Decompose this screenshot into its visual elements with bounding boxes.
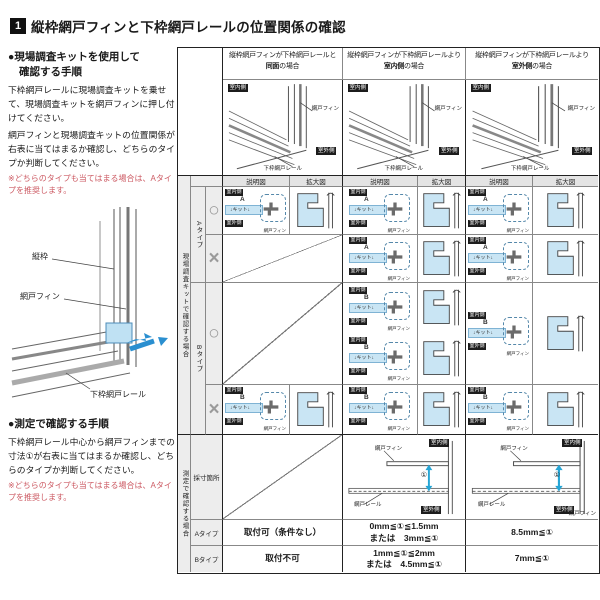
outdoor-badge: 室外側 xyxy=(349,220,367,227)
result-b-c1: 取付不可 xyxy=(223,546,343,572)
outdoor-badge: 室外側 xyxy=(468,418,486,425)
col-header-line1: 縦枠網戸フィンが下枠網戸レールと xyxy=(223,51,342,62)
fin-label: 網戸フィン xyxy=(312,104,339,112)
fin-label: 網戸フィン xyxy=(388,276,410,282)
measurement-diagram: 室内側 網戸フィン ① 網戸レール 室外側 網戸フィン xyxy=(466,435,598,519)
kit-diagram-host: 室内側 B ↓キット↓ 室外側 網戸フィン xyxy=(343,335,417,382)
section-number-box: 1 xyxy=(10,18,26,34)
fin-highlight-box xyxy=(503,194,529,222)
down-arrow-icon: ↓ xyxy=(491,255,494,261)
cell-b-ng-c2-zoom xyxy=(418,385,466,435)
profile-section-shape xyxy=(294,389,338,431)
kit-type-letter: A xyxy=(364,196,369,203)
kit-position-diagram: 室内側 A ↓キット↓ 室外側 網戸フィン xyxy=(467,188,531,234)
kit-procedure-paragraph-2: 網戸フィンと現場調査キットの位置関係が右表に当てはまるか確認し、どちらのタイプか… xyxy=(8,129,176,170)
enlarged-diagram xyxy=(290,187,342,234)
fin-highlight-box xyxy=(384,194,410,222)
indoor-badge: 室内側 xyxy=(349,287,367,294)
kit-word-label: ↓キット↓ xyxy=(473,404,493,411)
cell-b-ok-c2-zoom xyxy=(418,283,466,385)
outdoor-badge: 室外側 xyxy=(225,220,243,227)
cell-a-ok-c2-zoom xyxy=(418,187,466,235)
profile-section-shape xyxy=(420,238,464,280)
corner-line-art xyxy=(466,80,598,175)
kit-diagram-host: 室内側 B ↓キット↓ 室外側 網戸フィン xyxy=(467,310,531,357)
outdoor-badge: 室外側 xyxy=(349,368,367,375)
kit-word: キット xyxy=(233,405,248,411)
kit-position-diagram: 室内側 A ↓キット↓ 室外側 網戸フィン xyxy=(224,188,288,234)
fin-highlight-box xyxy=(503,317,529,345)
fin-highlight-box xyxy=(384,242,410,270)
indoor-badge: 室内側 xyxy=(468,387,486,394)
zoom-diagram-host xyxy=(418,287,465,329)
col-header-line2: 室内側の場合 xyxy=(343,62,465,73)
fin-highlight-box xyxy=(384,292,410,320)
outdoor-badge: 室外側 xyxy=(468,343,486,350)
left-pad-cell xyxy=(191,176,223,187)
profile-section-shape xyxy=(544,190,588,232)
fin-label: 網戸フィン xyxy=(568,104,595,112)
enlarged-diagram xyxy=(533,187,598,234)
kit-word-label: ↓キット↓ xyxy=(354,206,374,213)
cell-b-ok-c2-explain: 室内側 B ↓キット↓ 室外側 網戸フィン 室内側 B ↓キット↓ 室外側 網戸… xyxy=(343,283,418,385)
col-header-flush: 縦枠網戸フィンが下枠網戸レールと 同面の場合 xyxy=(223,48,343,80)
enlarged-diagram xyxy=(533,283,598,384)
kit-word: キット xyxy=(357,405,372,411)
type-b-ng-mark: × xyxy=(206,385,223,435)
fin-label: 網戸フィン xyxy=(507,426,529,432)
fin-label: 網戸フィン xyxy=(388,376,410,382)
fin-highlight-box xyxy=(260,194,286,222)
outdoor-badge: 室外側 xyxy=(421,506,441,514)
cell-a-ng-c3-zoom xyxy=(533,235,598,283)
kit-word: キット xyxy=(476,255,491,261)
fin-label: 網戸フィン xyxy=(264,426,286,432)
indoor-badge: 室内側 xyxy=(349,337,367,344)
kit-word: キット xyxy=(357,355,372,361)
dimension-1-label: ① xyxy=(421,471,427,479)
cell-b-ng-c3-explain: 室内側 B ↓キット↓ 室外側 網戸フィン xyxy=(466,385,533,435)
frame-overview-line-art xyxy=(8,201,173,413)
col-header-suffix: の場合 xyxy=(279,63,299,70)
fin-label: 網戸フィン xyxy=(569,509,596,517)
down-arrow-icon: ↓ xyxy=(248,207,251,213)
vertical-frame-label: 縦枠 xyxy=(32,251,48,262)
profile-section-shape xyxy=(544,313,588,355)
frame-corner-diagram: 室内側 網戸フィン 室外側 下枠網戸レール xyxy=(343,80,465,175)
col-header-line2: 同面の場合 xyxy=(223,62,342,73)
kit-word: キット xyxy=(476,207,491,213)
sidebar: ●現場調査キットを使用して 確認する手順 下枠網戸レールに現場調査キットを乗せて… xyxy=(8,50,176,504)
kit-word-label: ↓キット↓ xyxy=(473,206,493,213)
measure-type-a-label: Aタイプ xyxy=(191,520,223,546)
kit-type-letter: A xyxy=(483,244,488,251)
kit-word: キット xyxy=(476,330,491,336)
fin-label: 網戸フィン xyxy=(500,444,527,452)
kit-word-label: ↓キット↓ xyxy=(354,404,374,411)
fin-label: 網戸フィン xyxy=(264,228,286,234)
measurement-diagram: 室内側 網戸フィン ① 網戸レール 室外側 網戸フィン xyxy=(343,435,465,519)
rail-label: 下枠網戸レール xyxy=(511,164,550,172)
measure-procedure-section: ●測定で確認する手順 下枠網戸レール中心から網戸フィンまでの寸法①が右表に当ては… xyxy=(8,417,176,504)
kit-position-diagram: 室内側 B ↓キット↓ 室外側 網戸フィン xyxy=(467,386,531,432)
indoor-badge: 室内側 xyxy=(468,312,486,319)
indoor-badge: 室内側 xyxy=(228,84,248,92)
rail-label: 網戸レール xyxy=(478,500,506,508)
col-header-indoor: 縦枠網戸フィンが下枠網戸レールより 室内側の場合 xyxy=(343,48,466,80)
col-header-bold: 室内側 xyxy=(384,63,404,70)
profile-section-shape xyxy=(420,287,464,329)
type-b-ok-mark: ○ xyxy=(206,283,223,385)
header-diagram-flush: 室内側 網戸フィン 室外側 下枠網戸レール xyxy=(223,80,343,176)
fin-label: 網戸フィン xyxy=(507,228,529,234)
fin-highlight-box xyxy=(260,392,286,420)
enlarged-diagram xyxy=(290,385,342,434)
kit-word-label: ↓キット↓ xyxy=(354,354,374,361)
kit-procedure-paragraph-1: 下枠網戸レールに現場調査キットを乗せて、現場調査キットを網戸フィンに押し付けてく… xyxy=(8,84,176,125)
indoor-badge: 室内側 xyxy=(349,237,367,244)
kit-type-letter: B xyxy=(364,344,369,351)
kit-type-letter: B xyxy=(364,394,369,401)
subheader-explain: 説明図 xyxy=(466,176,533,187)
frame-corner-diagram: 室内側 網戸フィン 室外側 下枠網戸レール xyxy=(223,80,342,175)
cell-b-ng-c1-explain: 室内側 B ↓キット↓ 室外側 網戸フィン xyxy=(223,385,290,435)
cell-b-ng-c3-zoom xyxy=(533,385,598,435)
kit-position-diagram: 室内側 B ↓キット↓ 室外側 網戸フィン xyxy=(224,386,288,432)
indoor-badge: 室内側 xyxy=(349,387,367,394)
fin-highlight-box xyxy=(503,392,529,420)
enlarged-diagram xyxy=(418,287,465,329)
kit-type-letter: B xyxy=(483,319,488,326)
fin-highlight-box xyxy=(384,392,410,420)
indoor-badge: 室内側 xyxy=(225,387,243,394)
table-top-left-empty-cell xyxy=(178,48,223,176)
down-arrow-icon: ↓ xyxy=(372,405,375,411)
profile-section-shape xyxy=(420,338,464,380)
kit-word-label: ↓キット↓ xyxy=(230,404,250,411)
fin-highlight-box xyxy=(384,342,410,370)
fin-label: 網戸フィン xyxy=(507,276,529,282)
kit-position-diagram: 室内側 B ↓キット↓ 室外側 網戸フィン xyxy=(467,311,531,357)
cell-a-ok-c1-explain: 室内側 A ↓キット↓ 室外側 網戸フィン xyxy=(223,187,290,235)
col-header-suffix: の場合 xyxy=(404,63,424,70)
profile-section-shape xyxy=(420,389,464,431)
cell-a-ok-c2-explain: 室内側 A ↓キット↓ 室外側 網戸フィン xyxy=(343,187,418,235)
stacked-diagrams xyxy=(418,283,465,384)
kit-position-diagram: 室内側 B ↓キット↓ 室外側 網戸フィン xyxy=(348,386,412,432)
type-a-ng-mark: × xyxy=(206,235,223,283)
kit-type-letter: B xyxy=(483,394,488,401)
col-header-line1: 縦枠網戸フィンが下枠網戸レールより xyxy=(343,51,465,62)
header-diagram-outdoor: 室内側 網戸フィン 室外側 下枠網戸レール xyxy=(466,80,598,176)
fin-label: 網戸フィン xyxy=(20,291,60,302)
cell-a-ok-c1-zoom xyxy=(290,187,343,235)
kit-type-letter: B xyxy=(364,294,369,301)
enlarged-diagram xyxy=(418,235,465,282)
enlarged-diagram xyxy=(418,385,465,434)
fin-label: 網戸フィン xyxy=(388,326,410,332)
subheader-explain: 説明図 xyxy=(343,176,418,187)
kit-word-label: ↓キット↓ xyxy=(354,304,374,311)
fin-label: 網戸フィン xyxy=(375,444,402,452)
outdoor-badge: 室外側 xyxy=(225,418,243,425)
down-arrow-icon: ↓ xyxy=(491,207,494,213)
kit-position-diagram: 室内側 B ↓キット↓ 室外側 網戸フィン xyxy=(348,336,412,382)
cell-a-ok-c3-explain: 室内側 A ↓キット↓ 室外側 網戸フィン xyxy=(466,187,533,235)
type-a-row-label: Aタイプ xyxy=(191,187,206,283)
kit-position-diagram: 室内側 B ↓キット↓ 室外側 網戸フィン xyxy=(348,286,412,332)
cell-b-ng-c1-zoom xyxy=(290,385,343,435)
down-arrow-icon: ↓ xyxy=(372,255,375,261)
enlarged-diagram xyxy=(533,235,598,282)
type-a-ok-mark: ○ xyxy=(206,187,223,235)
cell-b-ok-c1-not-applicable xyxy=(223,283,343,385)
rail-label: 網戸レール xyxy=(354,500,382,508)
frame-corner-diagram: 室内側 網戸フィン 室外側 下枠網戸レール xyxy=(466,80,598,175)
frame-overview-diagram: 縦枠 網戸フィン 下枠網戸レール xyxy=(8,201,173,413)
kit-procedure-heading-line2: 確認する手順 xyxy=(8,65,176,80)
rail-label: 下枠網戸レール xyxy=(384,164,423,172)
enlarged-diagram xyxy=(418,338,465,380)
outdoor-badge: 室外側 xyxy=(468,268,486,275)
col-header-bold: 同面 xyxy=(266,63,279,70)
indoor-badge: 室内側 xyxy=(468,189,486,196)
indoor-badge: 室内側 xyxy=(471,84,491,92)
kit-word-label: ↓キット↓ xyxy=(230,206,250,213)
cell-a-ng-c3-explain: 室内側 A ↓キット↓ 室外側 網戸フィン xyxy=(466,235,533,283)
outdoor-badge: 室外側 xyxy=(439,147,459,155)
enlarged-diagram xyxy=(418,187,465,234)
fin-label: 網戸フィン xyxy=(507,351,529,357)
kit-type-letter: A xyxy=(483,196,488,203)
down-arrow-icon: ↓ xyxy=(372,207,375,213)
enlarged-diagram xyxy=(533,385,598,434)
measure-diagram-outdoor: 室内側 網戸フィン ① 網戸レール 室外側 網戸フィン xyxy=(466,435,598,520)
result-b-c2: 1mm≦①≦2mmまたは 4.5mm≦① xyxy=(343,546,466,572)
kit-word-label: ↓キット↓ xyxy=(354,254,374,261)
fin-label: 網戸フィン xyxy=(435,104,462,112)
kit-type-letter: A xyxy=(364,244,369,251)
down-arrow-icon: ↓ xyxy=(248,405,251,411)
measure-row-label: 採寸箇所 xyxy=(191,435,223,520)
col-header-line2: 室外側の場合 xyxy=(466,62,598,73)
indoor-badge: 室内側 xyxy=(225,189,243,196)
kit-position-diagram: 室内側 A ↓キット↓ 室外側 網戸フィン xyxy=(467,236,531,282)
result-a-c2: 0mm≦①≦1.5mmまたは 3mm≦① xyxy=(343,520,466,546)
result-a-c3: 8.5mm≦① xyxy=(466,520,598,546)
outdoor-badge: 室外側 xyxy=(468,220,486,227)
kit-type-letter: B xyxy=(240,394,245,401)
result-b-c3: 7mm≦① xyxy=(466,546,598,572)
profile-section-shape xyxy=(294,190,338,232)
kit-diagram-host: 室内側 B ↓キット↓ 室外側 網戸フィン xyxy=(343,285,417,332)
corner-line-art xyxy=(223,80,342,175)
cell-a-ok-c3-zoom xyxy=(533,187,598,235)
fin-label: 網戸フィン xyxy=(388,426,410,432)
outdoor-badge: 室外側 xyxy=(349,268,367,275)
instruction-page: 1 縦枠網戸フィンと下枠網戸レールの位置関係の確認 ●現場調査キットを使用して … xyxy=(0,0,600,600)
measure-procedure-paragraph: 下枠網戸レール中心から網戸フィンまでの寸法①が右表に当てはまるか確認し、どちらの… xyxy=(8,436,176,477)
kit-word: キット xyxy=(233,207,248,213)
fin-highlight-box xyxy=(503,242,529,270)
kit-word: キット xyxy=(357,255,372,261)
outdoor-badge: 室外側 xyxy=(316,147,336,155)
col-header-suffix: の場合 xyxy=(532,63,552,70)
indoor-badge: 室内側 xyxy=(348,84,368,92)
kit-word-label: ↓キット↓ xyxy=(473,254,493,261)
subheader-zoom: 拡大図 xyxy=(418,176,466,187)
measure-diagram-indoor: 室内側 網戸フィン ① 網戸レール 室外側 網戸フィン xyxy=(343,435,466,520)
measure-c1-not-applicable xyxy=(223,435,343,520)
page-title: 縦枠網戸フィンと下枠網戸レールの位置関係の確認 xyxy=(31,16,346,36)
result-a-c1: 取付可（条件なし） xyxy=(223,520,343,546)
indoor-badge: 室内側 xyxy=(562,439,582,447)
kit-word: キット xyxy=(357,207,372,213)
measure-procedure-note: ※どちらのタイプも当てはまる場合は、Aタイプを推奨します。 xyxy=(8,480,176,504)
header-diagram-indoor: 室内側 網戸フィン 室外側 下枠網戸レール xyxy=(343,80,466,176)
kit-word: キット xyxy=(476,405,491,411)
corner-line-art xyxy=(343,80,465,175)
profile-section-shape xyxy=(544,238,588,280)
measure-procedure-heading: ●測定で確認する手順 xyxy=(8,417,176,432)
centered-diagram: 室内側 B ↓キット↓ 室外側 網戸フィン xyxy=(466,283,532,384)
subheader-zoom: 拡大図 xyxy=(533,176,598,187)
cell-a-ng-c2-explain: 室内側 A ↓キット↓ 室外側 網戸フィン xyxy=(343,235,418,283)
col-header-line1: 縦枠網戸フィンが下枠網戸レールより xyxy=(466,51,598,62)
type-b-row-label: Bタイプ xyxy=(191,283,206,435)
down-arrow-icon: ↓ xyxy=(491,330,494,336)
measure-caption: 測定で確認する場合 xyxy=(178,435,191,572)
outdoor-badge: 室外側 xyxy=(349,418,367,425)
fin-label: 網戸フィン xyxy=(388,228,410,234)
subheader-explain: 説明図 xyxy=(223,176,290,187)
cell-a-ng-c1-not-applicable xyxy=(223,235,343,283)
page-title-row: 1 縦枠網戸フィンと下枠網戸レールの位置関係の確認 xyxy=(10,16,346,36)
outdoor-badge: 室外側 xyxy=(349,318,367,325)
indoor-badge: 室内側 xyxy=(429,439,449,447)
profile-section-shape xyxy=(544,389,588,431)
kit-position-diagram: 室内側 A ↓キット↓ 室外側 網戸フィン xyxy=(348,188,412,234)
indoor-badge: 室内側 xyxy=(349,189,367,196)
kit-procedure-note: ※どちらのタイプも当てはまる場合は、Aタイプを推奨します。 xyxy=(8,173,176,197)
position-check-table: 縦枠網戸フィンが下枠網戸レールと 同面の場合 縦枠網戸フィンが下枠網戸レールより… xyxy=(177,47,600,574)
cell-b-ok-c3-explain: 室内側 B ↓キット↓ 室外側 網戸フィン xyxy=(466,283,533,385)
kit-procedure-heading-line1: ●現場調査キットを使用して xyxy=(8,50,176,65)
kit-position-diagram: 室内側 A ↓キット↓ 室外側 網戸フィン xyxy=(348,236,412,282)
rail-label: 下枠網戸レール xyxy=(90,389,146,400)
kit-word: キット xyxy=(357,305,372,311)
indoor-badge: 室内側 xyxy=(468,237,486,244)
kit-type-letter: A xyxy=(240,196,245,203)
cell-b-ok-c3-zoom xyxy=(533,283,598,385)
kit-check-caption: 現場調査キットで確認する場合 xyxy=(178,176,191,435)
dimension-1-label: ① xyxy=(554,471,560,479)
cell-b-ng-c2-explain: 室内側 B ↓キット↓ 室外側 網戸フィン xyxy=(343,385,418,435)
col-header-outdoor: 縦枠網戸フィンが下枠網戸レールより 室外側の場合 xyxy=(466,48,598,80)
kit-word-label: ↓キット↓ xyxy=(473,329,493,336)
outdoor-badge: 室外側 xyxy=(572,147,592,155)
col-header-bold: 室外側 xyxy=(512,63,532,70)
cell-a-ng-c2-zoom xyxy=(418,235,466,283)
subheader-zoom: 拡大図 xyxy=(290,176,343,187)
down-arrow-icon: ↓ xyxy=(491,405,494,411)
stacked-diagrams: 室内側 B ↓キット↓ 室外側 網戸フィン 室内側 B ↓キット↓ 室外側 網戸… xyxy=(343,283,417,384)
down-arrow-icon: ↓ xyxy=(372,305,375,311)
rail-label: 下枠網戸レール xyxy=(263,164,302,172)
profile-section-shape xyxy=(420,190,464,232)
zoom-diagram-host xyxy=(418,338,465,380)
measure-type-b-label: Bタイプ xyxy=(191,546,223,572)
down-arrow-icon: ↓ xyxy=(372,355,375,361)
